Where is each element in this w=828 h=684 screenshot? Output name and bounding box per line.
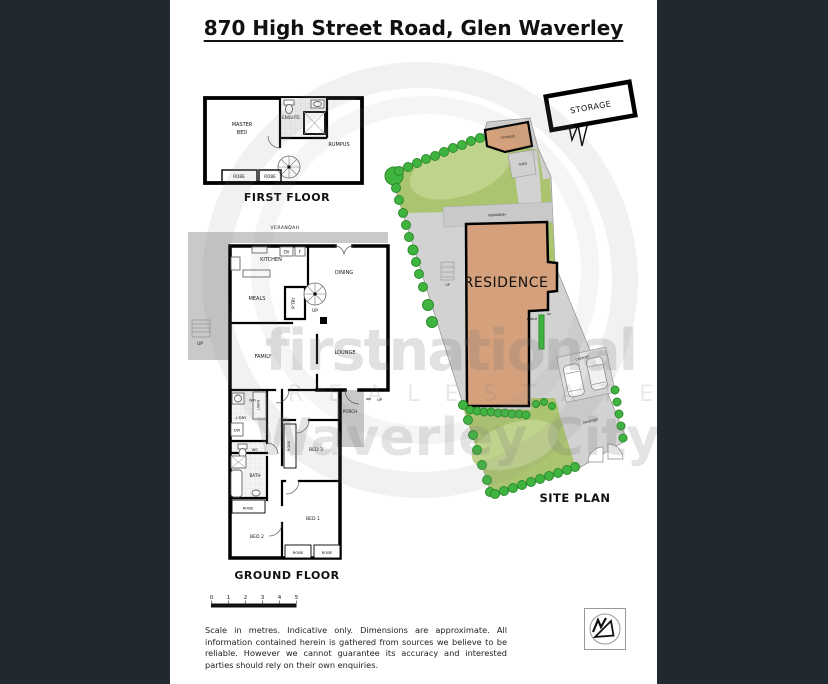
floorplan-page: 870 High Street Road, Glen Waverley	[0, 0, 828, 684]
porch-hedge	[539, 315, 544, 349]
stair-up-label: UP	[312, 308, 318, 314]
robe-bed3-label: ROBE	[287, 440, 291, 451]
scale-tick-2: 2	[244, 595, 248, 601]
site-deck-up-label: UP	[445, 283, 449, 287]
dining-label: DINING	[335, 270, 353, 276]
linen-label: LINEN	[257, 399, 261, 410]
disclaimer-text: Scale in metres. Indicative only. Dimens…	[205, 625, 507, 672]
robe-bed1-right-label: ROBE	[322, 550, 333, 555]
storage-callout: STORAGE	[546, 82, 636, 130]
rumpus-label: RUMPUS	[328, 142, 349, 148]
lounge-column	[320, 317, 327, 324]
first-floor-plan: MASTER BED ENSUITE RUMPUS ROBE ROBE FIRS…	[200, 88, 370, 213]
dw-label: DW	[234, 429, 241, 433]
scale-tick-5: 5	[295, 595, 299, 601]
first-floor-caption: FIRST FLOOR	[244, 191, 330, 204]
laundry-label: L'DRY	[236, 415, 247, 420]
patio-steps	[441, 262, 454, 280]
ground-floor-spiral-stair	[304, 283, 326, 305]
bath-label: BATH	[249, 473, 260, 478]
family-label: FAMILY	[255, 354, 273, 360]
site-plan-caption: SITE PLAN	[539, 491, 610, 505]
bed3-label: BED 3	[309, 447, 323, 453]
wc-label: WC	[252, 447, 259, 452]
wm-label: WM	[249, 399, 256, 403]
scale-tick-3: 3	[261, 595, 265, 601]
meals-label: MEALS	[249, 296, 266, 302]
side-deck	[188, 232, 230, 360]
scale-bar-rule	[211, 604, 297, 608]
bed2-label: BED 2	[250, 534, 264, 540]
agency-logo-mark	[585, 609, 625, 649]
lounge-label: LOUNGE	[335, 350, 356, 356]
residence-label: RESIDENCE	[464, 275, 549, 291]
porch-label: PORCH	[343, 409, 358, 414]
bed1-label: BED 1	[306, 516, 320, 522]
verandah-deck	[225, 232, 388, 243]
address-title: 870 High Street Road, Glen Waverley	[204, 16, 624, 40]
ff-robe-left-label: ROBE	[233, 174, 245, 179]
ensuite-label: ENSUITE	[282, 115, 300, 120]
verandah-label: VERANDAH	[270, 225, 299, 231]
scale-tick-1: 1	[227, 595, 231, 601]
ground-floor-caption: GROUND FLOOR	[234, 569, 339, 582]
deck-up-label: UP	[197, 341, 203, 346]
ov-label: OV	[284, 250, 290, 255]
ground-floor-plan: VERANDAH OV F KITCHEN DINING MEALS P'TRY…	[185, 213, 395, 585]
master-bed-label-2: BED	[237, 130, 248, 136]
agency-logo	[584, 608, 626, 650]
scale-tick-4: 4	[278, 595, 282, 601]
scale-ticks	[212, 601, 297, 604]
kitchen-label: KITCHEN	[260, 257, 282, 263]
ff-robe-right-label: ROBE	[264, 174, 276, 179]
scale-bar: 0 1 2 3 4 5	[208, 593, 300, 609]
robe-hall-label: ROBE	[243, 506, 254, 511]
robe-bed1-left-label: ROBE	[293, 550, 304, 555]
pantry-label: P'TRY	[291, 297, 296, 309]
master-bed-label-1: MASTER	[232, 122, 253, 128]
carport: CARPORT	[557, 347, 615, 402]
site-plan: CARPORT	[375, 70, 640, 510]
scale-tick-0: 0	[210, 595, 214, 601]
page-title: 870 High Street Road, Glen Waverley	[170, 16, 657, 40]
site-porch-up-label: UP	[547, 312, 551, 316]
site-porch-label: PORCH	[527, 317, 537, 321]
